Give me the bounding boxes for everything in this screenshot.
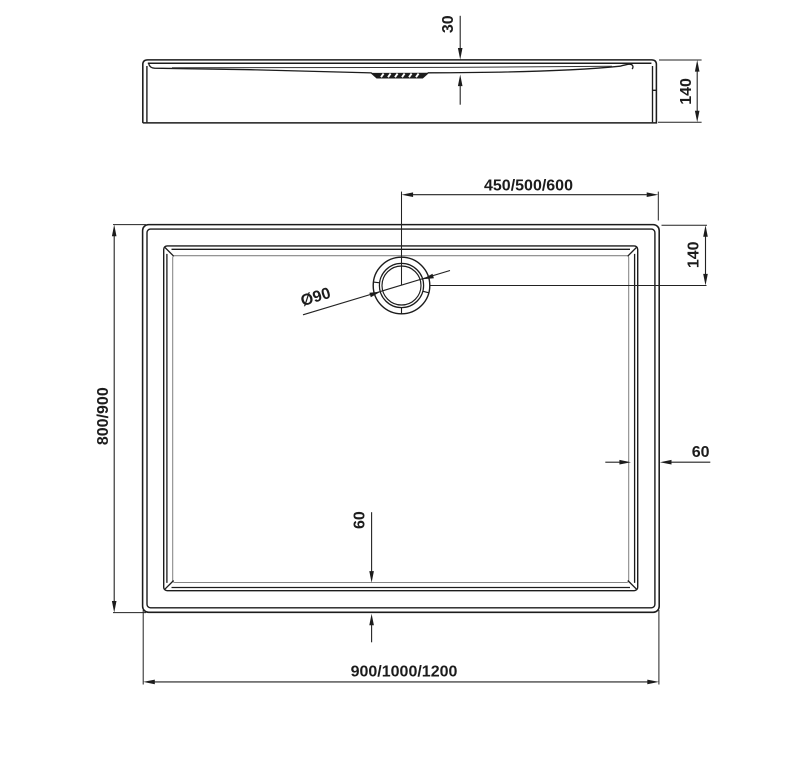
- svg-text:800/900: 800/900: [95, 387, 112, 445]
- svg-text:140: 140: [685, 241, 702, 268]
- svg-text:900/1000/1200: 900/1000/1200: [351, 664, 458, 681]
- svg-text:60: 60: [351, 511, 368, 529]
- svg-text:140: 140: [678, 78, 695, 105]
- svg-text:30: 30: [440, 15, 457, 33]
- svg-text:450/500/600: 450/500/600: [484, 177, 573, 194]
- svg-text:60: 60: [692, 444, 710, 461]
